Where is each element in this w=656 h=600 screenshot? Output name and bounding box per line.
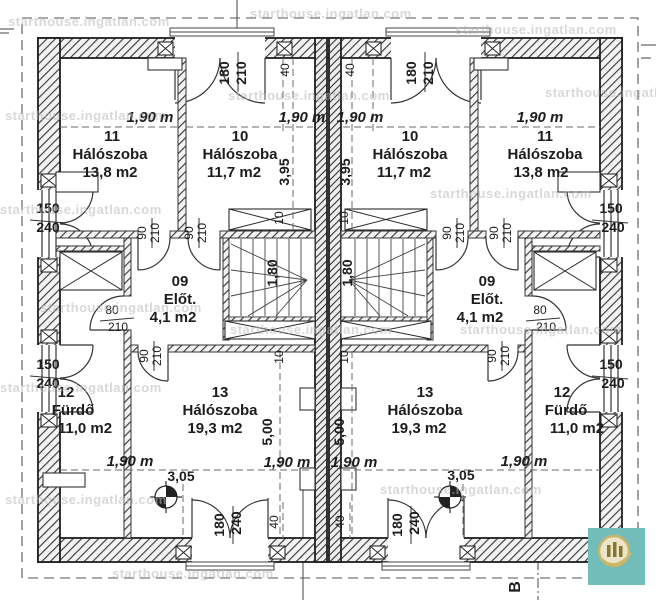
- dim-label: 10: [337, 350, 351, 364]
- watermark-text: starthouse.ingatlan.com: [5, 108, 167, 123]
- dim-label: 1,90 m: [501, 453, 548, 470]
- watermark-text: starthouse.ingatlan.com: [228, 88, 390, 103]
- watermark-text: starthouse.ingatlan.com: [230, 322, 392, 337]
- room-name: Hálószoba: [202, 146, 278, 163]
- watermark-text: starthouse.ingatlan.com: [545, 85, 656, 100]
- door-size: 180: [211, 513, 227, 537]
- dim-label: 40: [333, 515, 347, 529]
- window-size: 150: [36, 356, 60, 372]
- room-number: 13: [212, 384, 229, 401]
- watermark-text: starthouse.ingatlan.com: [455, 22, 617, 37]
- watermark-text: starthouse.ingatlan.com: [8, 14, 170, 29]
- watermark-text: starthouse.ingatlan.com: [0, 380, 162, 395]
- door-size: 180: [403, 61, 419, 85]
- door-size: 240: [228, 511, 244, 535]
- door-size: 180: [389, 513, 405, 537]
- room-number: 10: [232, 128, 249, 145]
- section-marker-b: B: [507, 581, 524, 593]
- door-size: 210: [108, 320, 128, 334]
- dim-label: 1,90 m: [517, 109, 564, 126]
- room-number: 10: [402, 128, 419, 145]
- door-size: 210: [498, 346, 512, 366]
- dim-label: 10: [337, 211, 351, 225]
- dim-label: 40: [343, 63, 357, 77]
- dim-label: 1,90 m: [264, 454, 311, 471]
- watermark-text: starthouse.ingatlan.com: [0, 202, 162, 217]
- room-name: Hálószoba: [72, 146, 148, 163]
- window-size: 150: [599, 200, 623, 216]
- door-size: 180: [216, 61, 232, 85]
- dim-label: 1,90 m: [107, 453, 154, 470]
- logo-bar-icon: [613, 542, 617, 557]
- dim-label: 40: [278, 63, 292, 77]
- door-size: 210: [453, 223, 467, 243]
- window-size: 150: [599, 356, 623, 372]
- dim-label: 3,95: [337, 158, 353, 185]
- dim-label: 3,05: [167, 468, 194, 484]
- stair-width-label: 1,80: [339, 259, 355, 286]
- door-size: 90: [485, 349, 499, 363]
- door-size: 210: [195, 223, 209, 243]
- door-size: 210: [420, 61, 436, 85]
- watermark: starthouse.ingatlan.com starthouse.ingat…: [0, 6, 656, 581]
- room-area: 11,7 m2: [377, 164, 431, 181]
- door-size: 90: [487, 226, 501, 240]
- dim-label: 10: [272, 350, 286, 364]
- watermark-text: starthouse.ingatlan.com: [5, 492, 167, 507]
- door-size: 210: [148, 223, 162, 243]
- door-size: 90: [135, 226, 149, 240]
- door-size: 90: [440, 226, 454, 240]
- dim-label: 5,00: [331, 418, 347, 445]
- room-area: 13,8 m2: [82, 164, 137, 181]
- door-size: 210: [233, 61, 249, 85]
- room-number: 12: [554, 384, 571, 401]
- logo-bar-icon: [619, 546, 623, 557]
- room-number: 09: [479, 273, 496, 290]
- watermark-text: starthouse.ingatlan.com: [460, 322, 622, 337]
- room-area: 19,3 m2: [187, 420, 242, 437]
- room-area: 11,0 m2: [550, 420, 604, 437]
- watermark-text: starthouse.ingatlan.com: [40, 300, 202, 315]
- stair-width-label: 1,80: [264, 259, 280, 286]
- room-area: 11,0 m2: [58, 420, 112, 437]
- room-area: 19,3 m2: [391, 420, 446, 437]
- dim-label: 5,00: [259, 418, 275, 445]
- room-name: Hálószoba: [387, 402, 463, 419]
- window-size: 240: [601, 375, 625, 391]
- watermark-text: starthouse.ingatlan.com: [380, 482, 542, 497]
- dim-label: 40: [267, 515, 281, 529]
- room-number: 11: [537, 128, 553, 145]
- door-size: 80: [533, 303, 547, 317]
- door-size: 90: [137, 349, 151, 363]
- window-size: 240: [601, 219, 625, 235]
- door-size: 240: [406, 511, 422, 535]
- room-number: 09: [172, 273, 189, 290]
- room-name: Előt.: [471, 291, 504, 308]
- dim-label: 1,90 m: [337, 109, 384, 126]
- watermark-text: starthouse.ingatlan.com: [430, 186, 592, 201]
- door-size: 210: [500, 223, 514, 243]
- room-name: Fürdő: [545, 402, 588, 419]
- room-name: Hálószoba: [507, 146, 583, 163]
- room-name: Hálószoba: [182, 402, 258, 419]
- room-name: Hálószoba: [372, 146, 448, 163]
- room-number: 13: [417, 384, 434, 401]
- watermark-text: starthouse.ingatlan.com: [112, 566, 274, 581]
- logo-bar-icon: [607, 545, 611, 557]
- agency-logo: [588, 528, 645, 585]
- watermark-text: starthouse.ingatlan.com: [250, 6, 412, 21]
- window-size: 240: [36, 219, 60, 235]
- floor-plan-svg: 11 Hálószoba 13,8 m2 10 Hálószoba 11,7 m…: [0, 0, 656, 600]
- room-number: 11: [104, 128, 120, 145]
- dim-label: 1,90 m: [331, 454, 378, 471]
- dim-label: 3,05: [447, 467, 474, 483]
- dim-label: 3,95: [276, 158, 292, 185]
- room-name: Fürdő: [52, 402, 95, 419]
- wardrobe-right: [534, 252, 596, 290]
- floor-plan-image: 11 Hálószoba 13,8 m2 10 Hálószoba 11,7 m…: [0, 0, 656, 600]
- door-size: 210: [150, 346, 164, 366]
- dim-label: 1,90 m: [279, 109, 326, 126]
- wardrobe-left: [60, 252, 122, 290]
- dim-label: 10: [272, 211, 286, 225]
- door-size: 90: [182, 226, 196, 240]
- room-area: 11,7 m2: [207, 164, 261, 181]
- room-area: 13,8 m2: [513, 164, 568, 181]
- wall-right: [600, 38, 622, 562]
